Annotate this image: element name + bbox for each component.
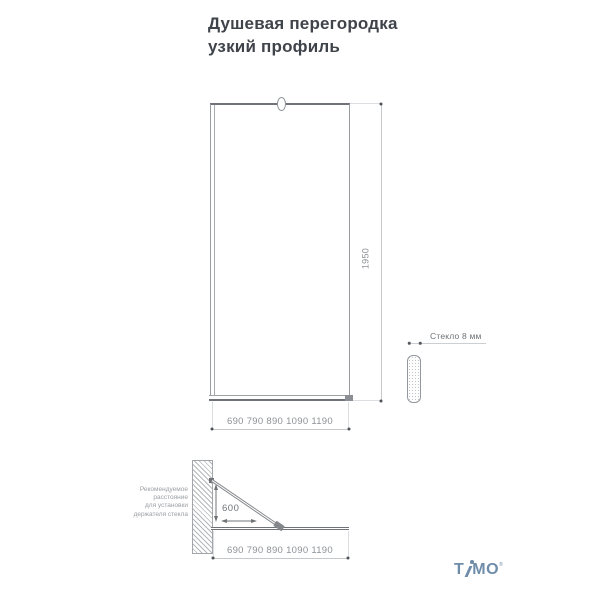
width-dimension-line-side <box>213 558 348 559</box>
leader-endpoint-dot <box>408 342 411 345</box>
holder-note-line: для установки <box>118 502 188 510</box>
timo-logo: T MO ® <box>454 562 503 578</box>
page-title: Душевая перегородка узкий профиль <box>208 12 398 58</box>
extension-line-top <box>350 103 382 104</box>
width-dimension-label: 690 790 890 1090 1190 <box>180 416 380 427</box>
logo-slash-i-icon <box>464 562 472 578</box>
logo-i-dot-icon <box>470 560 474 564</box>
holder-note: Рекомендуемое расстояние для установки д… <box>118 486 188 519</box>
dim-endpoint-dot <box>380 400 383 403</box>
holder-distance-label: 600 <box>222 503 239 514</box>
logo-letter-t: T <box>454 562 464 578</box>
page-title-line-2: узкий профиль <box>208 35 398 58</box>
page-title-line-1: Душевая перегородка <box>208 12 398 35</box>
holder-note-line: держателя стекла <box>118 511 188 519</box>
narrow-profile-inner-line <box>214 105 215 395</box>
holder-note-line: расстояние <box>118 494 188 502</box>
dim-endpoint-dot <box>348 428 351 431</box>
glass-panel-outline <box>210 103 350 398</box>
leader-endpoint-dot <box>419 342 422 345</box>
bottom-support-bar <box>209 395 353 401</box>
bottom-bar-end-cap <box>345 395 353 401</box>
holder-note-line: Рекомендуемое <box>118 486 188 494</box>
logo-i-bar-icon <box>465 566 473 577</box>
top-mounting-hole <box>277 97 286 111</box>
glass-cross-section <box>407 355 421 403</box>
shower-partition-spec-sheet: Душевая перегородка узкий профиль 1950 6… <box>0 0 600 600</box>
height-dimension-label: 1950 <box>361 234 372 284</box>
dim-endpoint-dot <box>211 428 214 431</box>
dim-endpoint-dot <box>212 557 215 560</box>
registered-trademark-icon: ® <box>499 563 503 568</box>
width-dimension-label-side: 690 790 890 1090 1190 <box>180 545 380 556</box>
dim-endpoint-dot <box>380 103 383 106</box>
dim-endpoint-dot <box>347 557 350 560</box>
logo-letters-mo: MO <box>472 562 499 578</box>
glass-thickness-label: Стекло 8 мм <box>430 331 482 341</box>
height-dimension-line <box>381 104 382 401</box>
extension-line-bottom <box>353 400 382 401</box>
width-dimension-line <box>212 429 349 430</box>
